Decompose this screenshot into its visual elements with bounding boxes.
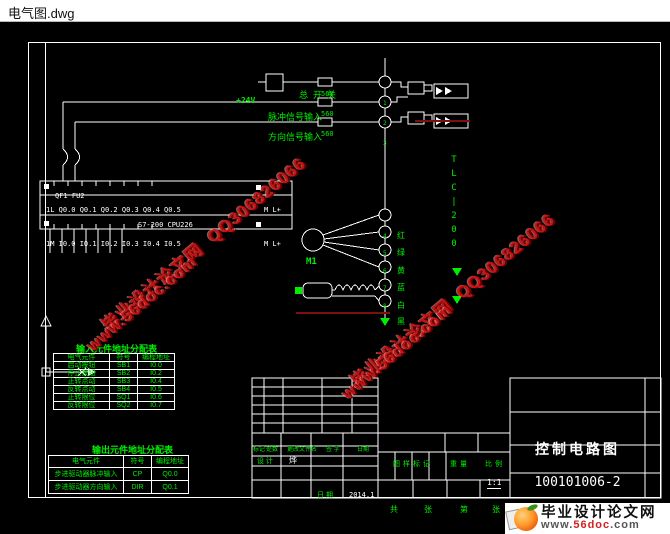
table-row: 步进驱动器脉冲输入CPQ0.0: [49, 468, 189, 481]
sheets-total-label: 共: [390, 506, 398, 514]
col-header: 符号: [124, 456, 152, 468]
resistor-value-3: 560: [321, 131, 334, 138]
plc-top-terminals: 1L Q0.0 Q0.1 Q0.2 Q0.3 Q0.4 Q0.5: [46, 207, 181, 214]
main-switch-label: 总开关: [299, 91, 341, 100]
page-unit-label: 张: [492, 506, 500, 514]
input-allocation-table: 电气元件 符号 编程地址 启动按钮SB1I0.0 停止按钮SB2I0.2 正转点…: [53, 353, 175, 410]
sheets-unit-label: 张: [424, 506, 432, 514]
col-header: 电气元件: [54, 354, 110, 362]
terminal-number: 5: [383, 251, 387, 257]
col-header: 符号: [110, 354, 138, 362]
terminal-number: 7: [383, 286, 387, 292]
scale-value: 1:1: [487, 479, 501, 489]
stamp-label: 图样标记: [393, 461, 433, 468]
table-row: 正转限位SQ1I0.6: [54, 394, 175, 402]
table-row: 启动按钮SB1I0.0: [54, 362, 175, 370]
direction-signal-label: 方向信号输入: [268, 133, 322, 142]
table-row: 步进驱动器方向输入DIRQ0.1: [49, 481, 189, 494]
wire-tag: 红: [397, 232, 405, 240]
terminal-number: 1: [383, 101, 387, 107]
drawing-number: 100101006-2: [510, 476, 645, 489]
col-header: 电气元件: [49, 456, 124, 468]
plc-top-right-terminals: M L+: [264, 207, 281, 214]
breaker-label: QF1 FU2: [55, 193, 85, 200]
terminal-number: 8: [383, 304, 387, 310]
window-titlebar: 电气图.dwg: [0, 0, 670, 22]
plc-bottom-right-terminals: M L+: [264, 241, 281, 248]
logo-site-name: 毕业设计论文网: [541, 506, 657, 521]
pulse-signal-label: 脉冲信号输入: [268, 113, 322, 122]
table-row: 反转限位SQ2I0.7: [54, 402, 175, 410]
col-header: 编程地址: [152, 456, 189, 468]
logo-site-url: www.56doc.com: [541, 520, 657, 531]
terminal-number: 6: [383, 269, 387, 275]
col-header: 编程地址: [138, 354, 175, 362]
rev-header-sign: 签 字: [326, 447, 340, 453]
terminal-number: 2: [383, 121, 387, 127]
resistor-value-2: 560: [321, 111, 334, 118]
rev-header-mark: 标记: [253, 447, 265, 453]
terminal-number: 4: [383, 234, 387, 240]
motor-label: M1: [306, 258, 317, 267]
output-allocation-table: 电气元件 符号 编程地址 步进驱动器脉冲输入CPQ0.0 步进驱动器方向输入DI…: [48, 455, 189, 494]
rev-header-file: 更改文件名: [287, 447, 317, 453]
weight-label: 重量: [450, 461, 470, 468]
plc-bottom-terminals: 1M I0.0 I0.1 I0.2 I0.3 I0.4 I0.5: [46, 241, 181, 248]
date-value: 2014.1: [349, 492, 374, 499]
wire-tag: 蓝: [397, 284, 405, 292]
rev-header-count: 处数: [266, 447, 278, 453]
table-row: 停止按钮SB2I0.2: [54, 370, 175, 378]
terminal-number: 3: [383, 141, 387, 147]
file-name: 电气图.dwg: [8, 3, 74, 22]
site-logo: 毕业设计论文网 www.56doc.com: [505, 503, 670, 534]
red-underline-coil: [296, 312, 390, 314]
table-row: 正转点动SB3I0.4: [54, 378, 175, 386]
scale-label: 比例: [485, 461, 505, 468]
drawing-canvas[interactable]: +24V 总开关 560 脉冲信号输入 560 方向信号输入 560 QF1 F…: [0, 22, 670, 512]
plc-model-label: S7-200 CPU226: [138, 222, 193, 229]
peach-document-icon: [505, 504, 541, 534]
designer-name: 烨: [289, 457, 297, 465]
red-underline-top: [415, 120, 470, 122]
resistor-value-1: 560: [321, 91, 334, 98]
wire-tag: 白: [397, 302, 405, 310]
page-number-label: 第: [460, 506, 468, 514]
rev-header-date: 日期: [357, 447, 369, 453]
table-row: 反转点动SB4I0.5: [54, 386, 175, 394]
date-label: 日 期: [317, 492, 333, 499]
terminal-number: 9: [383, 320, 387, 326]
power-24v-label: +24V: [236, 97, 255, 105]
wire-tag: 绿: [397, 249, 405, 257]
drawing-title: 控制电路图: [510, 442, 645, 456]
design-label: 设 计: [257, 458, 273, 465]
wire-tag: 黄: [397, 267, 405, 275]
driver-model-vertical-label: T L C | 2 0 0: [448, 156, 460, 254]
